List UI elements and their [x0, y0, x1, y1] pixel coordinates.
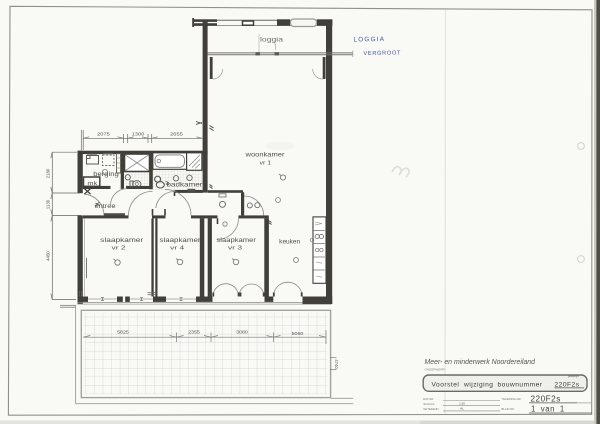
svg-text:2075: 2075 [97, 131, 110, 136]
svg-text:GETEKEND:: GETEKEND: [423, 407, 439, 411]
svg-text:slaapkamer: slaapkamer [160, 238, 201, 244]
svg-text:BLAD.NR:: BLAD.NR: [502, 407, 515, 411]
svg-text:entree: entree [95, 204, 117, 210]
svg-text:slaapkamer: slaapkamer [216, 238, 256, 244]
svg-text:slaapkamer: slaapkamer [100, 238, 143, 244]
svg-text:SCHAAL:: SCHAAL: [423, 402, 435, 406]
svg-text:LOGGIA: LOGGIA [353, 36, 385, 44]
svg-text:HL: HL [460, 407, 464, 411]
svg-text:5825: 5825 [117, 329, 129, 334]
svg-text:2355: 2355 [188, 329, 200, 334]
svg-text:vr 3: vr 3 [228, 245, 242, 251]
svg-text:keuken: keuken [279, 240, 300, 246]
svg-text:1:50: 1:50 [459, 401, 465, 405]
svg-text:1130: 1130 [46, 199, 51, 209]
svg-text:1300: 1300 [132, 131, 145, 136]
svg-text:vr 2: vr 2 [112, 245, 126, 251]
svg-text:vr 1: vr 1 [260, 161, 272, 167]
svg-text:220F2s: 220F2s [531, 394, 561, 403]
svg-text:vr 4: vr 4 [170, 245, 185, 251]
svg-text:Meer- en minderwerk Noordereil: Meer- en minderwerk Noordereiland [425, 357, 536, 366]
svg-text:TEKENING.NR:: TEKENING.NR: [502, 397, 522, 401]
svg-text:2180: 2180 [46, 168, 51, 178]
svg-text:badkamer: badkamer [167, 183, 203, 189]
svg-text:woonkamer: woonkamer [244, 152, 285, 159]
svg-text:ONDERWERP:: ONDERWERP: [425, 367, 446, 371]
svg-text:5060: 5060 [292, 331, 304, 336]
svg-text:DATUM:: DATUM: [423, 397, 434, 401]
svg-text:4740: 4740 [334, 359, 339, 369]
svg-text:gewijzigd: gewijzigd [568, 374, 579, 378]
svg-text:mk: mk [87, 181, 97, 187]
svg-text:4450: 4450 [46, 251, 51, 261]
svg-text:3080: 3080 [236, 329, 248, 334]
svg-text:VERGROOT: VERGROOT [363, 50, 401, 57]
svg-text:1 van 1: 1 van 1 [531, 404, 565, 413]
svg-text:loggia: loggia [260, 37, 284, 44]
svg-text:2655: 2655 [170, 131, 183, 136]
